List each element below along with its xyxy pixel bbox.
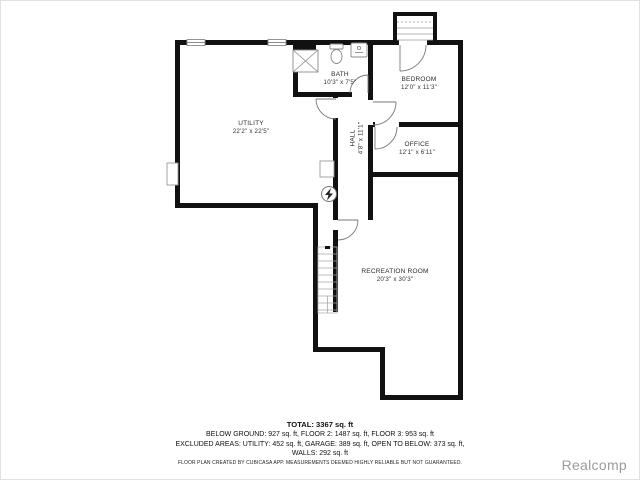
walls-area-text: WALLS: 292 sq. ft	[0, 450, 640, 458]
room-name: BATH	[310, 71, 370, 79]
room-label-bath: BATH 10'3" x 7'5"	[310, 71, 370, 88]
room-name: OFFICE	[387, 141, 447, 149]
room-dims: 12'0" x 11'3"	[389, 84, 449, 92]
disclaimer-text: FLOOR PLAN CREATED BY CUBICASA APP. MEAS…	[0, 460, 640, 466]
room-label-recreation: RECREATION ROOM 20'3" x 30'3"	[345, 268, 445, 285]
realcomp-watermark: Realcomp	[562, 457, 627, 473]
room-dims: 20'3" x 30'3"	[345, 276, 445, 284]
room-label-hall: HALL 4'8" x 11'1"	[346, 116, 370, 161]
area-summary: TOTAL: 3367 sq. ft BELOW GROUND: 927 sq.…	[0, 421, 640, 458]
electrical-panel-icon	[322, 187, 337, 202]
window-icon	[268, 40, 286, 46]
wall-niche	[167, 163, 178, 185]
sink-icon	[351, 43, 367, 57]
room-dims: 22'2" x 22'5"	[221, 128, 281, 136]
excluded-areas-text: EXCLUDED AREAS: UTILITY: 452 sq. ft, GAR…	[0, 441, 640, 449]
window-icon	[187, 40, 205, 46]
stairs-up-icon	[397, 22, 433, 40]
shower-icon	[293, 43, 318, 72]
floor-areas-text: BELOW GROUND: 927 sq. ft, FLOOR 2: 1487 …	[0, 431, 640, 439]
room-dims: 12'1" x 6'11"	[387, 149, 447, 157]
room-name: RECREATION ROOM	[345, 268, 445, 276]
door-bedroom-top	[400, 45, 426, 71]
door-utility	[316, 99, 336, 119]
room-label-office: OFFICE 12'1" x 6'11"	[387, 141, 447, 158]
room-dims: 4'8" x 11'1"	[358, 122, 366, 154]
staircase-icon	[318, 246, 337, 313]
room-name: HALL	[349, 129, 357, 146]
room-label-bedroom: BEDROOM 12'0" x 11'3"	[389, 76, 449, 93]
toilet-icon	[330, 44, 343, 64]
room-label-utility: UTILITY 22'2" x 22'5"	[221, 120, 281, 137]
door-bedroom	[373, 102, 396, 125]
floor-plan-image: UTILITY 22'2" x 22'5" BATH 10'3" x 7'5" …	[0, 0, 640, 480]
door-recreation	[338, 220, 358, 240]
appliance-square	[320, 161, 334, 177]
total-area-text: TOTAL: 3367 sq. ft	[0, 421, 640, 430]
room-dims: 10'3" x 7'5"	[310, 79, 370, 87]
room-name: UTILITY	[221, 120, 281, 128]
room-name: BEDROOM	[389, 76, 449, 84]
